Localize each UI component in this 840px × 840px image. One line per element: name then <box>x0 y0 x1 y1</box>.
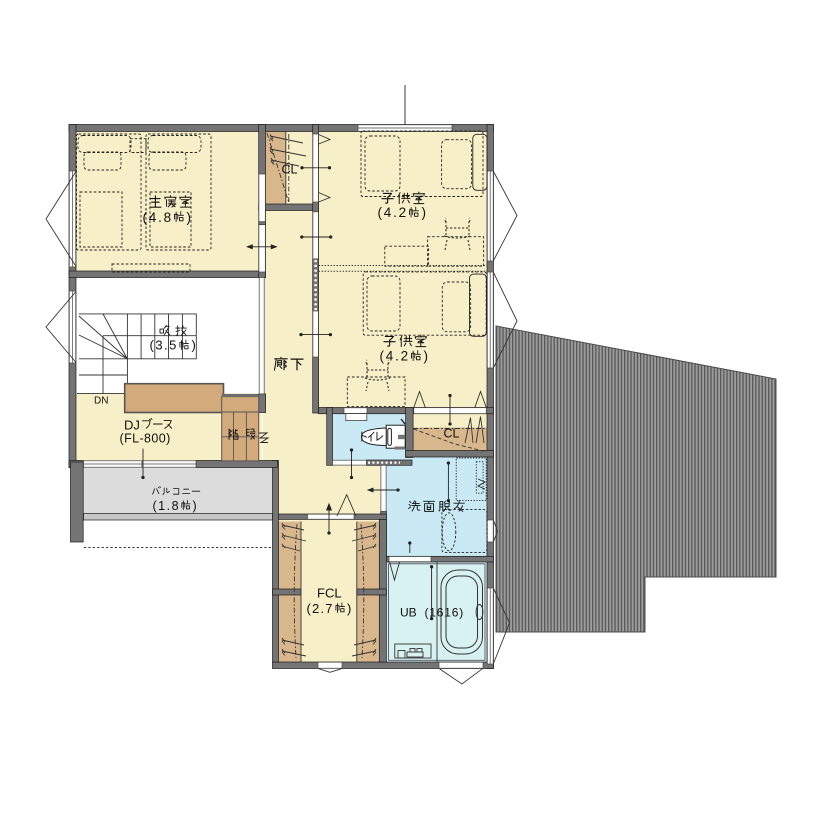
svg-text:(4.2: (4.2 <box>378 205 408 220</box>
svg-text:): ) <box>193 499 197 513</box>
svg-text:CL: CL <box>282 162 298 176</box>
svg-text:(1.8: (1.8 <box>153 499 181 513</box>
svg-text:): ) <box>424 349 429 364</box>
svg-text:CL: CL <box>444 427 460 441</box>
svg-text:(3.5: (3.5 <box>150 338 178 353</box>
svg-text:(1616): (1616) <box>425 606 465 620</box>
svg-text:(4.8: (4.8 <box>143 210 173 225</box>
svg-text:): ) <box>187 210 192 225</box>
svg-text:FCL: FCL <box>317 586 342 601</box>
svg-text:DN: DN <box>94 396 108 407</box>
svg-text:UB: UB <box>400 606 417 620</box>
svg-text:DJ: DJ <box>124 418 140 433</box>
svg-text:): ) <box>347 601 351 616</box>
svg-text:(FL-800): (FL-800) <box>120 432 171 446</box>
svg-text:): ) <box>422 205 427 220</box>
svg-text:(4.2: (4.2 <box>380 349 410 364</box>
svg-text:(2.7: (2.7 <box>307 601 334 616</box>
svg-text:): ) <box>192 338 196 353</box>
